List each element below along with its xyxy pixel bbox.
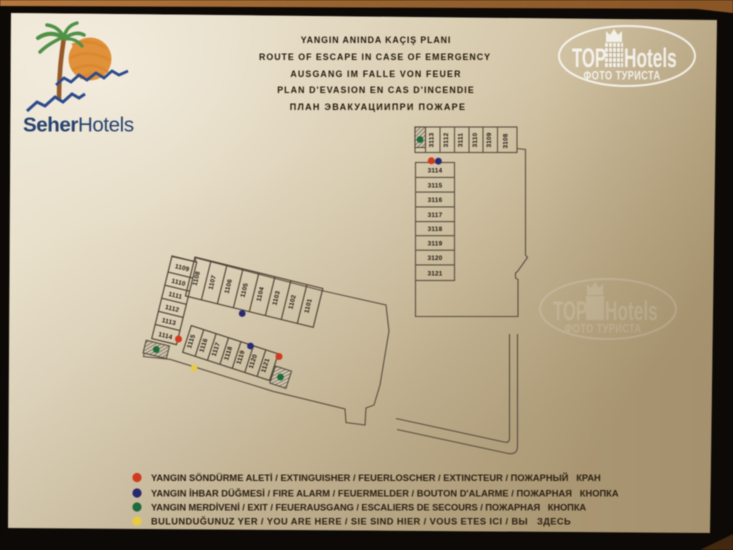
svg-text:TOP: TOP	[553, 296, 587, 326]
svg-text:3119: 3119	[428, 241, 443, 248]
svg-text:YANGIN ANINDA KAÇIŞ PLANI: YANGIN ANINDA KAÇIŞ PLANI	[301, 35, 452, 45]
svg-text:SeherHotels: SeherHotels	[23, 114, 134, 137]
svg-text:Hotels: Hotels	[624, 42, 677, 73]
svg-text:ROUTE OF ESCAPE IN CASE OF EME: ROUTE OF ESCAPE IN CASE OF EMERGENCY	[259, 52, 491, 62]
svg-text:Hotels: Hotels	[605, 295, 658, 326]
svg-text:ФОТО ТУРИСТА: ФОТО ТУРИСТА	[564, 324, 641, 336]
svg-text:ПЛАН ЭВАКУАЦИИПРИ ПОЖАРЕ: ПЛАН ЭВАКУАЦИИПРИ ПОЖАРЕ	[290, 102, 467, 112]
svg-text:ФОТО ТУРИСТА: ФОТО ТУРИСТА	[583, 71, 660, 83]
svg-text:YANGIN SÖNDÜRME ALETİ / EXTING: YANGIN SÖNDÜRME ALETİ / EXTINGUISHER / F…	[151, 472, 601, 483]
svg-text:BULUNDUĞUNUZ YER / YOU ARE HER: BULUNDUĞUNUZ YER / YOU ARE HERE / SIE SI…	[151, 516, 571, 527]
svg-text:3112: 3112	[443, 132, 450, 147]
svg-text:3118: 3118	[428, 226, 443, 233]
svg-text:3116: 3116	[428, 197, 443, 204]
svg-text:TOP: TOP	[572, 43, 606, 73]
svg-text:3108: 3108	[503, 133, 510, 148]
svg-text:3120: 3120	[427, 255, 442, 262]
svg-text:3111: 3111	[458, 133, 465, 148]
svg-text:3121: 3121	[427, 270, 442, 277]
svg-text:3115: 3115	[428, 182, 443, 189]
svg-text:3109: 3109	[486, 132, 493, 147]
svg-text:PLAN D'EVASION EN CAS D'INCEND: PLAN D'EVASION EN CAS D'INCENDIE	[277, 85, 475, 95]
svg-text:3110: 3110	[472, 132, 479, 147]
svg-text:3117: 3117	[428, 212, 443, 219]
svg-text:YANGIN MERDİVENİ / EXIT / FEUE: YANGIN MERDİVENİ / EXIT / FEUERAUSGANG /…	[151, 503, 586, 513]
svg-text:YANGIN İHBAR DÜĞMESİ / FIRE AL: YANGIN İHBAR DÜĞMESİ / FIRE ALARM / FEUE…	[151, 488, 619, 499]
svg-text:AUSGANG IM FALLE VON FEUER: AUSGANG IM FALLE VON FEUER	[290, 69, 461, 79]
svg-text:3113: 3113	[429, 132, 436, 147]
svg-text:3114: 3114	[428, 168, 443, 175]
